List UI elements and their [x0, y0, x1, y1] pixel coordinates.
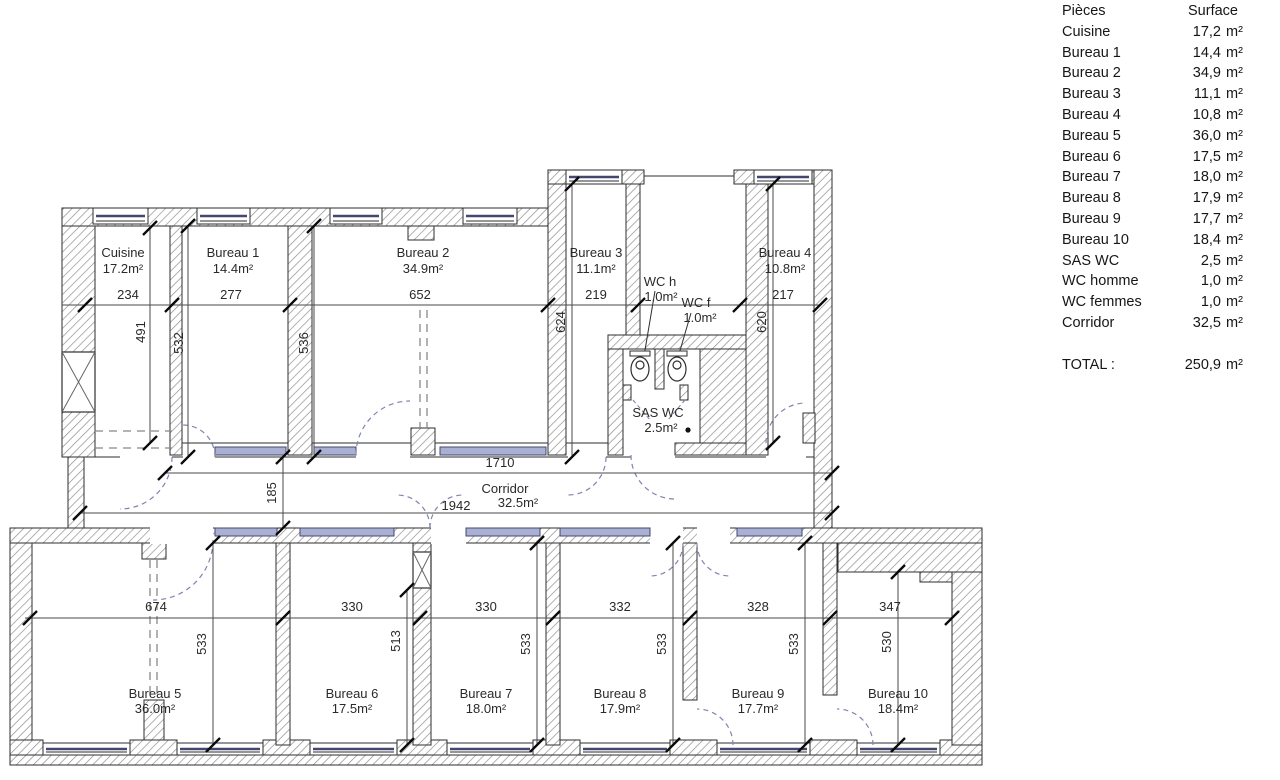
room-label-bureau9: Bureau 9 [732, 686, 785, 701]
table-header: Pièces Surface [1062, 1, 1254, 22]
room-label-cuisine: Cuisine [101, 245, 144, 260]
dim-513: 513 [388, 630, 403, 652]
room-area-bureau4: 10.8m² [765, 261, 806, 276]
table-row: Bureau 234,9m² [1062, 63, 1254, 84]
dim-536: 536 [296, 332, 311, 354]
dim-277: 277 [220, 287, 242, 302]
duct-boxes [62, 352, 431, 588]
floor-plan: Cuisine 17.2m² Bureau 1 14.4m² Bureau 2 … [0, 0, 1000, 775]
dim-217: 217 [772, 287, 794, 302]
dim-332: 332 [609, 599, 631, 614]
dim-674: 674 [145, 599, 167, 614]
table-row: WC femmes1,0m² [1062, 292, 1254, 313]
total-value: 250,9 [1179, 355, 1221, 376]
dim-347: 347 [879, 599, 901, 614]
room-area-bureau8: 17.9m² [600, 701, 641, 716]
table-row: Corridor32,5m² [1062, 313, 1254, 334]
dim-533d: 533 [786, 633, 801, 655]
surface-table: Pièces Surface Cuisine17,2m² Bureau 114,… [1062, 1, 1254, 376]
room-label-bureau6: Bureau 6 [326, 686, 379, 701]
room-area-bureau1: 14.4m² [213, 261, 254, 276]
dim-219: 219 [585, 287, 607, 302]
dim-620: 620 [754, 311, 769, 333]
room-label-bureau3: Bureau 3 [570, 245, 623, 260]
plan-labels: Cuisine 17.2m² Bureau 1 14.4m² Bureau 2 … [101, 245, 928, 716]
table-row: Bureau 617,5m² [1062, 147, 1254, 168]
dim-234: 234 [117, 287, 139, 302]
dim-533a: 533 [194, 633, 209, 655]
dim-530: 530 [879, 631, 894, 653]
total-label: TOTAL : [1062, 355, 1179, 376]
header-surface: Surface [1188, 1, 1254, 22]
room-label-corridor: Corridor [482, 481, 530, 496]
dim-533c: 533 [654, 633, 669, 655]
room-label-wc-h: WC h [644, 274, 677, 289]
room-area-sas-wc: 2.5m² [644, 420, 678, 435]
table-row: Cuisine17,2m² [1062, 22, 1254, 43]
dim-533b: 533 [518, 633, 533, 655]
room-label-bureau1: Bureau 1 [207, 245, 260, 260]
header-pieces: Pièces [1062, 1, 1188, 22]
floor-plan-svg: Cuisine 17.2m² Bureau 1 14.4m² Bureau 2 … [0, 0, 1000, 775]
room-label-wc-f: WC f [682, 295, 711, 310]
table-spacer [1062, 334, 1254, 355]
room-label-bureau7: Bureau 7 [460, 686, 513, 701]
dim-532: 532 [171, 332, 186, 354]
room-label-bureau10: Bureau 10 [868, 686, 928, 701]
total-unit: m² [1221, 355, 1254, 376]
room-area-bureau9: 17.7m² [738, 701, 779, 716]
room-label-bureau8: Bureau 8 [594, 686, 647, 701]
room-area-cuisine: 17.2m² [103, 261, 144, 276]
room-area-wc-h: 1.0m² [644, 289, 678, 304]
room-label-bureau5: Bureau 5 [129, 686, 182, 701]
table-row: Bureau 917,7m² [1062, 209, 1254, 230]
dim-330b: 330 [475, 599, 497, 614]
table-row: Bureau 410,8m² [1062, 105, 1254, 126]
table-row: Bureau 1018,4m² [1062, 230, 1254, 251]
dim-185: 185 [264, 482, 279, 504]
dashed-construction-lines [95, 310, 427, 700]
room-area-corridor: 32.5m² [498, 495, 539, 510]
table-row: Bureau 718,0m² [1062, 167, 1254, 188]
dim-330a: 330 [341, 599, 363, 614]
table-row: WC homme1,0m² [1062, 271, 1254, 292]
table-row: Bureau 311,1m² [1062, 84, 1254, 105]
dim-624: 624 [553, 311, 568, 333]
room-label-bureau4: Bureau 4 [759, 245, 812, 260]
table-row: Bureau 114,4m² [1062, 43, 1254, 64]
table-row: Bureau 817,9m² [1062, 188, 1254, 209]
room-area-bureau2: 34.9m² [403, 261, 444, 276]
dim-1710: 1710 [486, 455, 515, 470]
table-row: Bureau 536,0m² [1062, 126, 1254, 147]
room-area-bureau5: 36.0m² [135, 701, 176, 716]
room-label-bureau2: Bureau 2 [397, 245, 450, 260]
dim-1942: 1942 [442, 498, 471, 513]
room-area-bureau7: 18.0m² [466, 701, 507, 716]
table-total-row: TOTAL : 250,9 m² [1062, 355, 1254, 376]
dim-328: 328 [747, 599, 769, 614]
room-label-sas-wc: SAS WC [632, 405, 683, 420]
dim-491: 491 [133, 321, 148, 343]
room-area-bureau3: 11.1m² [576, 261, 616, 276]
room-area-wc-f: 1.0m² [683, 310, 717, 325]
dim-652: 652 [409, 287, 431, 302]
table-row: SAS WC2,5m² [1062, 251, 1254, 272]
room-area-bureau6: 17.5m² [332, 701, 373, 716]
room-area-bureau10: 18.4m² [878, 701, 919, 716]
